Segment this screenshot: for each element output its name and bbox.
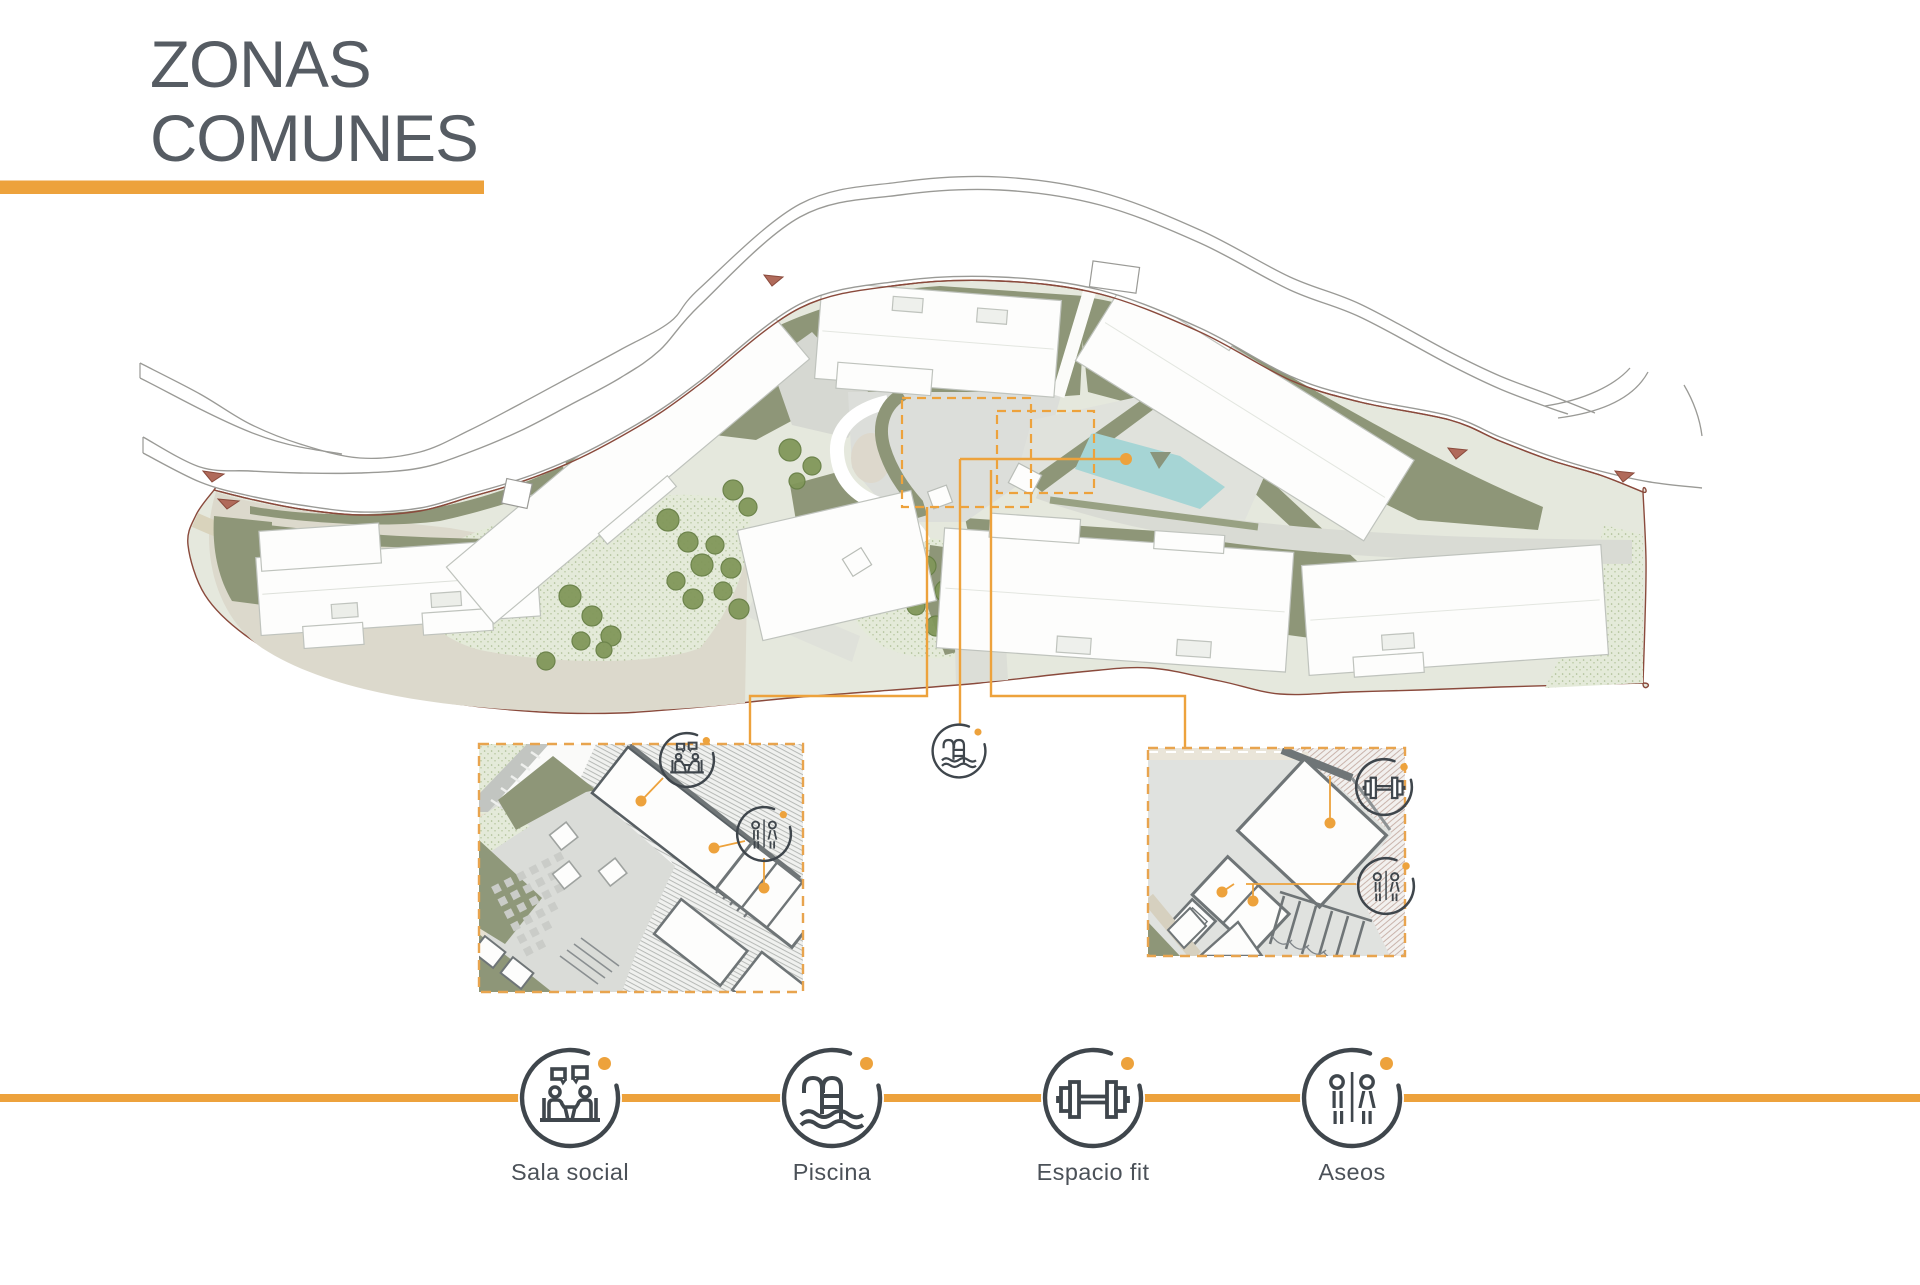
svg-text:Espacio fit: Espacio fit (1037, 1159, 1150, 1185)
svg-text:ZONAS: ZONAS (150, 28, 371, 101)
svg-text:Piscina: Piscina (793, 1159, 872, 1185)
svg-text:Aseos: Aseos (1318, 1159, 1385, 1185)
svg-text:Sala social: Sala social (511, 1159, 629, 1185)
svg-text:COMUNES: COMUNES (150, 102, 478, 175)
